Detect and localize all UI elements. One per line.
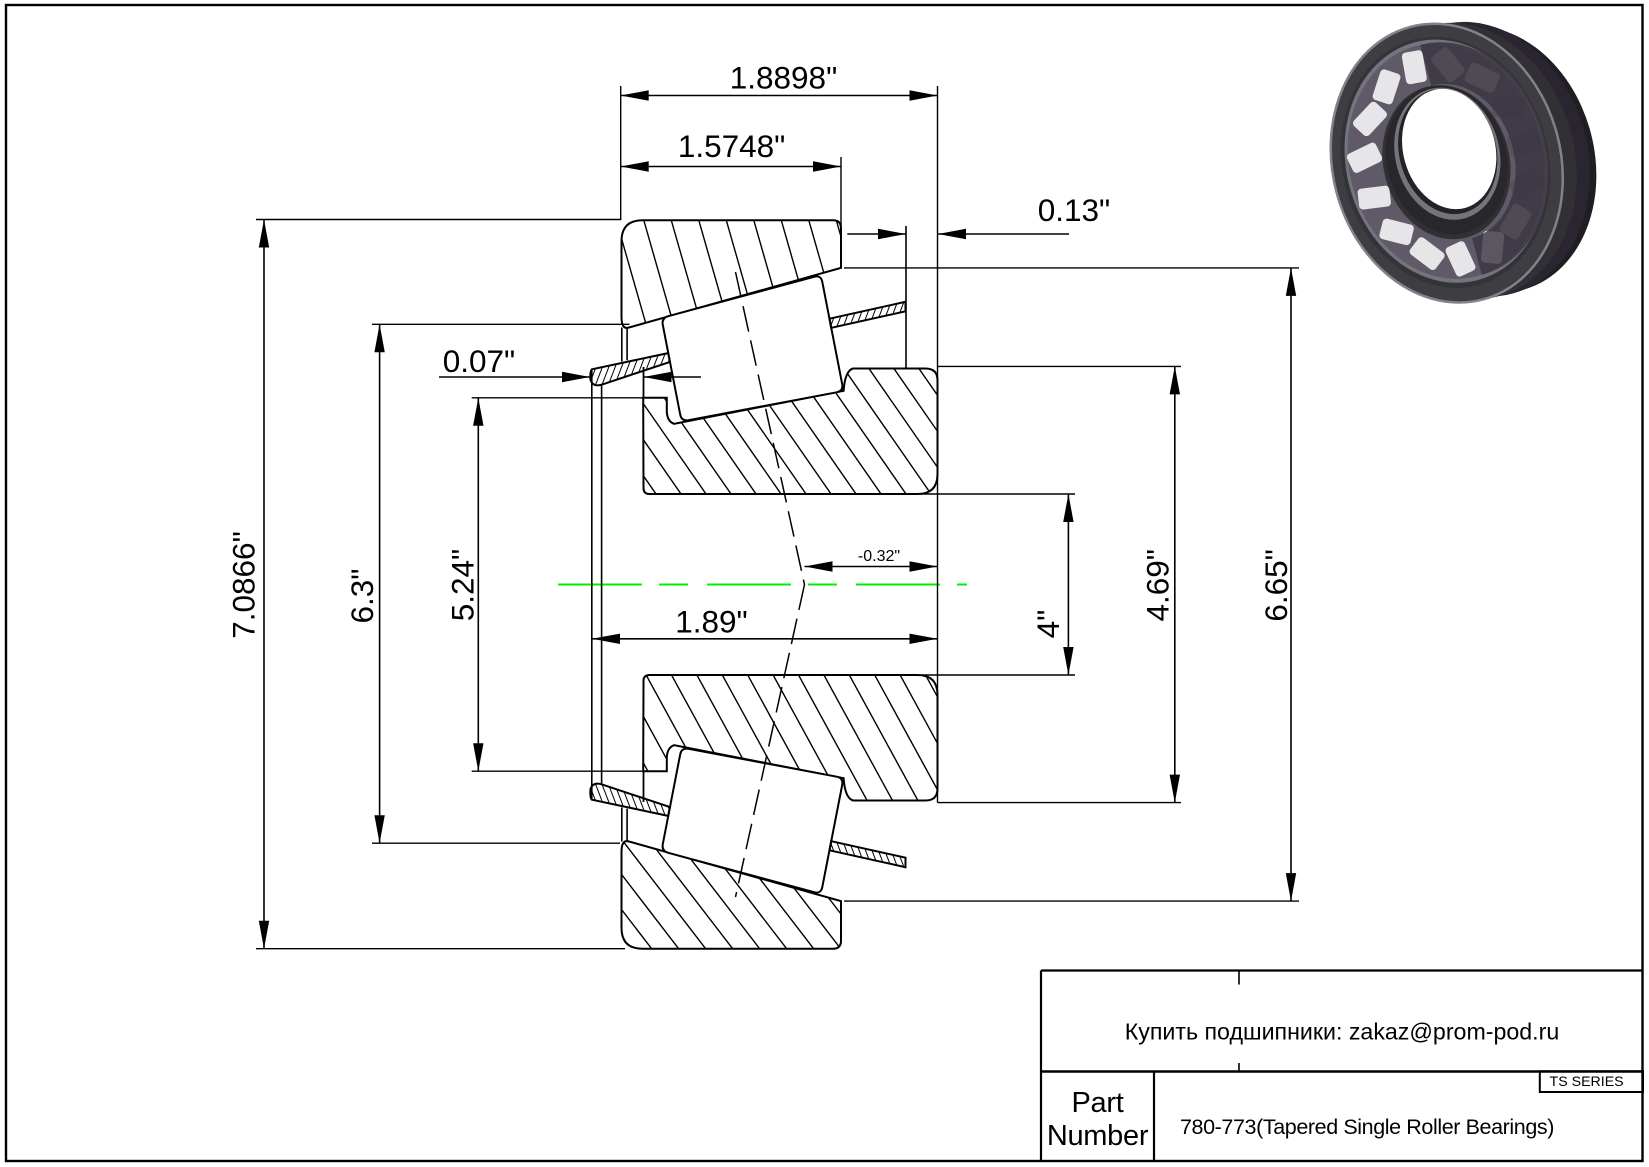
svg-text:Part: Part bbox=[1072, 1087, 1124, 1119]
svg-text:1.5748": 1.5748" bbox=[678, 128, 786, 164]
svg-text:6.65": 6.65" bbox=[1258, 549, 1294, 622]
svg-text:0.07": 0.07" bbox=[443, 343, 516, 379]
svg-text:Купить подшипники: zakaz@prom-: Купить подшипники: zakaz@prom-pod.ru bbox=[1125, 1019, 1559, 1045]
svg-text:TS SERIES: TS SERIES bbox=[1550, 1074, 1624, 1090]
svg-text:780-773(Tapered Single Roller: 780-773(Tapered Single Roller Bearings) bbox=[1180, 1115, 1554, 1139]
svg-text:1.8898": 1.8898" bbox=[730, 60, 838, 96]
svg-text:Number: Number bbox=[1047, 1120, 1149, 1152]
svg-text:7.0866": 7.0866" bbox=[226, 531, 262, 639]
svg-text:4": 4" bbox=[1030, 610, 1066, 639]
svg-text:4.69": 4.69" bbox=[1139, 549, 1175, 622]
svg-text:-0.32": -0.32" bbox=[858, 548, 900, 565]
svg-text:6.3": 6.3" bbox=[344, 569, 380, 624]
svg-text:0.13": 0.13" bbox=[1038, 192, 1111, 228]
svg-text:5.24": 5.24" bbox=[445, 549, 481, 622]
svg-text:1.89": 1.89" bbox=[675, 604, 748, 640]
